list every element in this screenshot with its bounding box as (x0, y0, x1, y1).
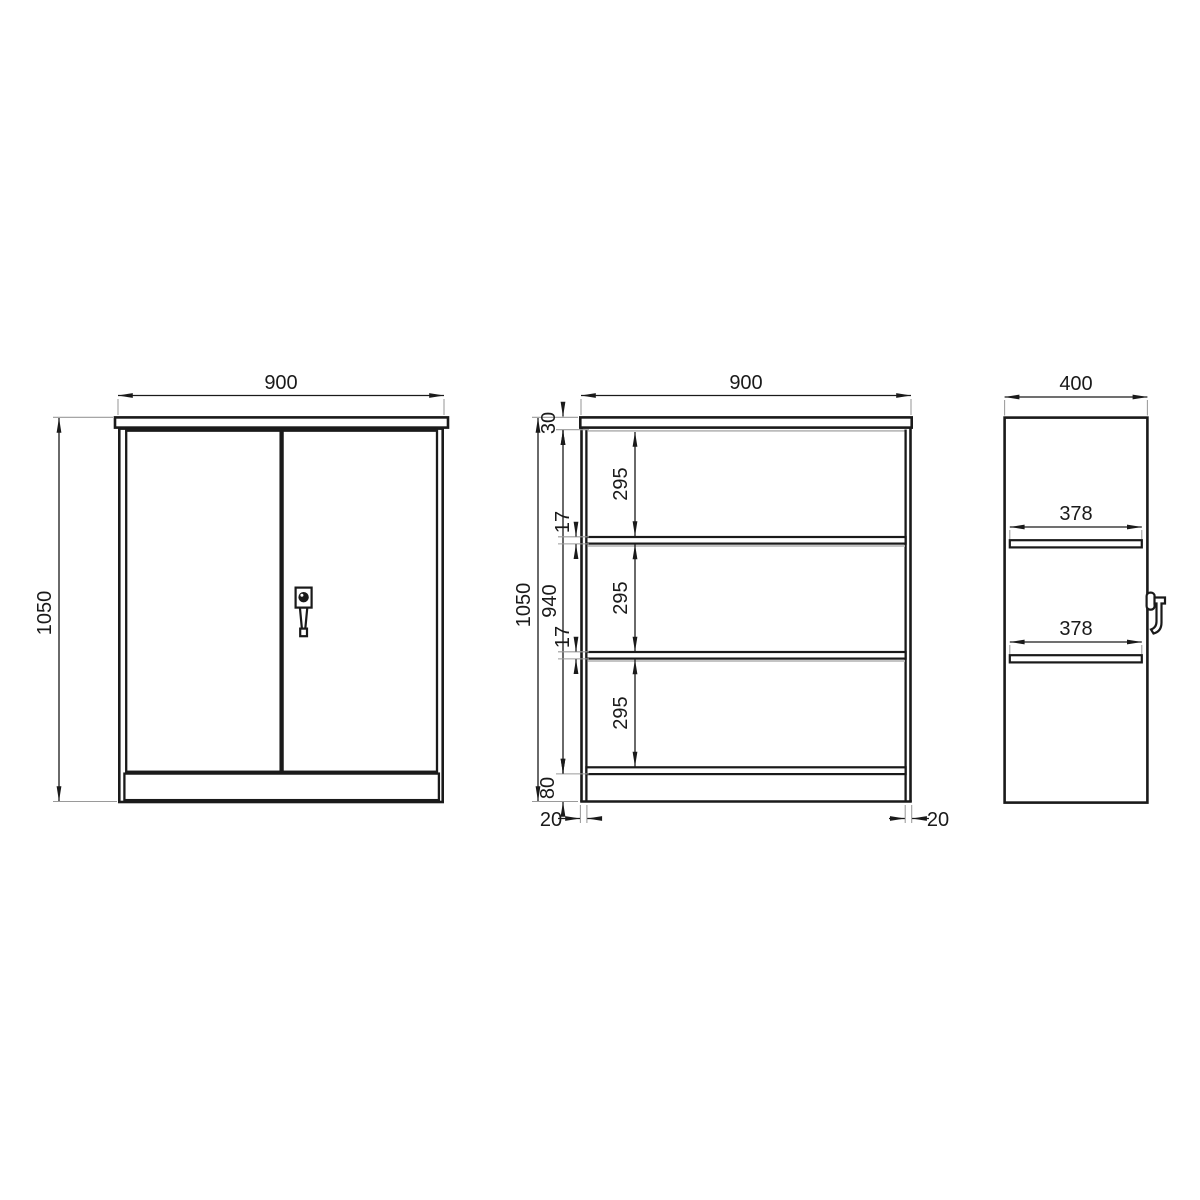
shelf-depth-1-dimension: 378 (1010, 503, 1142, 539)
shelf-2-label: 17 (552, 626, 574, 648)
front-top-panel (115, 417, 448, 427)
keyhole-icon (298, 592, 308, 602)
side-handle-icon (1147, 593, 1165, 634)
shelf-1-label: 17 (552, 511, 574, 533)
cabinet-three-view-drawing: 900 1050 900 (0, 0, 1200, 1200)
section-width-label: 900 (729, 372, 762, 394)
front-view: 900 1050 (34, 372, 448, 802)
front-width-dimension: 900 (118, 372, 444, 415)
compartment-2-label: 295 (610, 581, 632, 614)
section-top-panel (580, 417, 911, 427)
front-door-left (126, 431, 280, 772)
keyhole-highlight (300, 594, 303, 597)
section-height-label: 1050 (513, 583, 535, 628)
side-depth-dimension: 400 (1005, 373, 1148, 416)
left-wall-label: 20 (540, 809, 562, 831)
front-height-dimension: 1050 (34, 417, 117, 801)
front-height-label: 1050 (34, 591, 56, 636)
section-view: 900 1050 30 940 80 (513, 372, 949, 831)
lock-handle-blade (300, 608, 307, 629)
lock-handle-foot (300, 629, 307, 637)
left-wall-dimension: 20 (540, 805, 602, 831)
base-label: 80 (537, 777, 559, 799)
side-view: 400 378 378 (1005, 373, 1165, 803)
compartment-1-label: 295 (610, 467, 632, 500)
right-wall-label: 20 (927, 809, 949, 831)
section-bottom-shelf (586, 767, 905, 774)
section-shelf-1 (586, 537, 905, 544)
side-shelf-2 (1010, 655, 1142, 662)
front-plinth (124, 774, 439, 801)
shelf-depth-2-dimension: 378 (1010, 618, 1142, 654)
front-width-label: 900 (264, 372, 297, 394)
section-shelf-2 (586, 652, 905, 659)
shelf-2-dimension: 17 (552, 626, 589, 672)
compartment-3-label: 295 (610, 696, 632, 729)
inner-height-label: 940 (539, 584, 561, 617)
section-width-dimension: 900 (581, 372, 911, 415)
compartment-1-dimension: 295 (610, 432, 635, 536)
shelf-depth-1-label: 378 (1059, 503, 1092, 525)
compartment-3-dimension: 295 (610, 660, 635, 767)
shelf-1-dimension: 17 (552, 511, 589, 557)
side-body (1005, 418, 1148, 803)
right-wall-dimension: 20 (889, 805, 949, 831)
shelf-depth-2-label: 378 (1059, 618, 1092, 640)
base-dimension: 80 (537, 761, 563, 815)
lock-icon (296, 588, 312, 637)
top-panel-label: 30 (538, 412, 560, 434)
drawing-canvas: 900 1050 900 (0, 0, 1200, 1200)
side-shelf-1 (1010, 540, 1142, 547)
compartment-2-dimension: 295 (610, 545, 635, 652)
side-depth-label: 400 (1059, 373, 1092, 395)
